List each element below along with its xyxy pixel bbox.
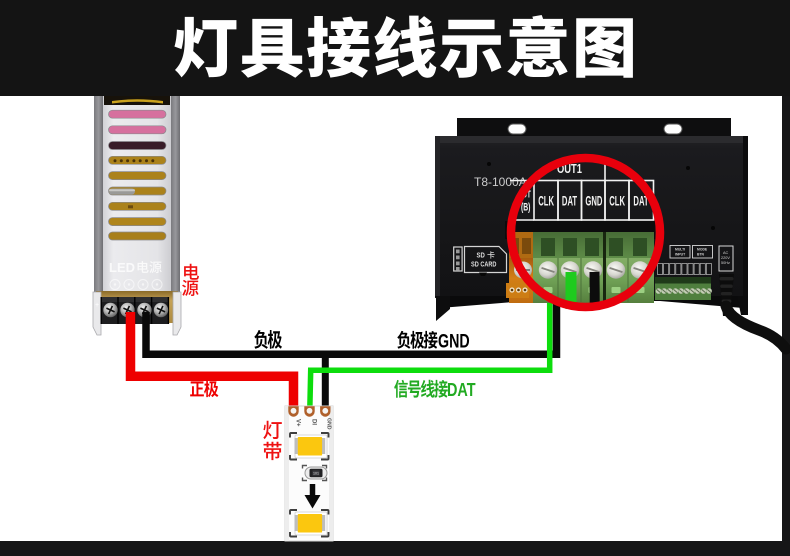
svg-text:MODE: MODE: [697, 248, 708, 252]
svg-text:SD CARD: SD CARD: [471, 261, 497, 269]
svg-text:CLK: CLK: [538, 194, 554, 209]
svg-text:LED: LED: [109, 260, 135, 275]
svg-text:MULTI: MULTI: [675, 248, 685, 252]
svg-text:DAT: DAT: [562, 194, 577, 209]
svg-text:V+: V+: [295, 419, 301, 427]
svg-text:GND: GND: [326, 418, 332, 430]
svg-text:50Hz: 50Hz: [721, 261, 730, 265]
svg-text:DAT: DAT: [447, 379, 476, 400]
svg-text:BTN: BTN: [697, 253, 705, 257]
svg-text:CLK: CLK: [609, 194, 625, 209]
svg-text:AC: AC: [723, 251, 729, 255]
svg-text:101: 101: [313, 472, 319, 476]
svg-text:DI: DI: [311, 419, 317, 425]
svg-text:(B): (B): [521, 201, 530, 213]
svg-text:+: +: [95, 302, 99, 309]
svg-text:INPUT: INPUT: [675, 253, 686, 257]
svg-text:GND: GND: [438, 331, 470, 352]
svg-text:SD: SD: [477, 252, 485, 260]
svg-text:220V: 220V: [721, 256, 730, 260]
svg-text:GND: GND: [585, 194, 602, 209]
